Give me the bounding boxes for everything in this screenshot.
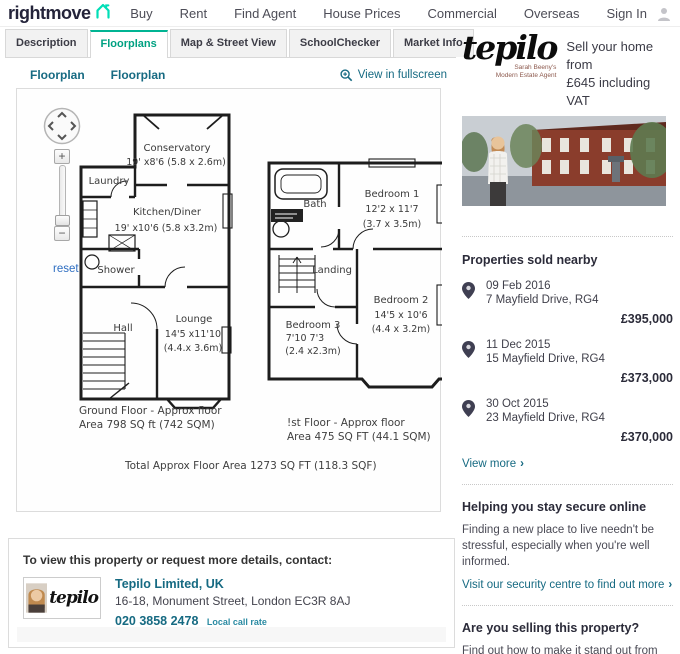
phone-rate-note: Local call rate <box>207 617 267 627</box>
room-label-hall: Hall <box>113 323 132 334</box>
contact-card-footer <box>17 627 446 642</box>
sold-address: 15 Mayfield Drive, RG4 <box>486 353 605 365</box>
chevron-right-icon: › <box>520 458 524 470</box>
floorplan-viewer[interactable]: Conservatory 19' x8'6 (5.8 x 2.6m) Laund… <box>16 88 441 512</box>
sold-address: 7 Mayfield Drive, RG4 <box>486 294 598 306</box>
sold-item[interactable]: 09 Feb 2016 7 Mayfield Drive, RG4 <box>462 280 673 306</box>
contact-card: To view this property or request more de… <box>8 538 455 648</box>
ground-caption-2: Area 798 SQ ft (742 SQM) <box>79 419 215 431</box>
agent-address: 16-18, Monument Street, London EC3R 8AJ <box>115 594 350 608</box>
separator <box>462 605 673 606</box>
tepilo-logo-block: tepilo Sarah Beeny's Modern Estate Agent <box>462 33 556 110</box>
room-label-bath: Bath <box>303 199 326 210</box>
person-icon[interactable] <box>656 6 672 22</box>
room-dims-bedroom2-1: 14'5 x 10'6 <box>374 310 427 321</box>
floorplan-tab-2[interactable]: Floorplan <box>111 68 166 82</box>
secure-body: Finding a new place to live needn't be s… <box>462 522 673 570</box>
agent-photo <box>26 580 47 616</box>
contact-heading: To view this property or request more de… <box>23 553 440 567</box>
nav-house-prices[interactable]: House Prices <box>323 6 400 21</box>
room-dims-bedroom1-2: (3.7 x 3.5m) <box>363 219 422 230</box>
sold-price: £395,000 <box>462 312 673 326</box>
zoom-out-button[interactable]: − <box>54 226 70 241</box>
nav-sign-in[interactable]: Sign In <box>607 6 647 21</box>
selling-heading: Are you selling this property? <box>462 621 673 635</box>
tab-description[interactable]: Description <box>5 29 88 57</box>
tab-floorplans[interactable]: Floorplans <box>90 30 168 58</box>
rightmove-logo-text: rightmove <box>8 3 91 24</box>
room-dims-bedroom3-1: 7'10 7'3 <box>286 333 324 344</box>
zoom-track[interactable] <box>59 165 66 225</box>
total-area-caption: Total Approx Floor Area 1273 SQ FT (118.… <box>124 460 377 472</box>
tepilo-offer: Sell your home from £645 including VAT <box>566 38 673 110</box>
room-dims-bedroom2-2: (4.4 x 3.2m) <box>372 324 431 335</box>
room-dims-lounge-1: 14'5 x11'10 <box>165 329 221 340</box>
airing-cupboard-label <box>271 209 303 222</box>
house-icon <box>93 1 113 21</box>
tab-schoolchecker[interactable]: SchoolChecker <box>289 29 391 57</box>
rightmove-floorplans-page: rightmove Buy Rent Find Agent House Pric… <box>0 0 680 654</box>
ground-caption-1: Ground Floor - Approx floor <box>79 405 222 417</box>
sold-date: 30 Oct 2015 <box>486 398 605 410</box>
selling-body: Find out how to make it stand out from t… <box>462 643 673 654</box>
sold-price: £370,000 <box>462 430 673 444</box>
tab-map-street-view[interactable]: Map & Street View <box>170 29 287 57</box>
zoom-handle[interactable] <box>55 215 70 226</box>
reset-link[interactable]: reset <box>53 263 71 275</box>
floorplan-image: Conservatory 19' x8'6 (5.8 x 2.6m) Laund… <box>17 89 442 509</box>
tepilo-logo-text: tepilo <box>462 33 556 63</box>
zoom-in-button[interactable]: + <box>54 149 70 164</box>
room-label-conservatory: Conservatory <box>143 143 210 154</box>
chevron-right-icon: › <box>668 579 672 591</box>
room-label-landing: Landing <box>312 265 352 276</box>
top-header: rightmove Buy Rent Find Agent House Pric… <box>0 0 680 27</box>
sold-address: 23 Mayfield Drive, RG4 <box>486 412 605 424</box>
view-more-link[interactable]: View more› <box>462 458 673 470</box>
nav-overseas[interactable]: Overseas <box>524 6 580 21</box>
room-label-bedroom3: Bedroom 3 <box>286 320 341 331</box>
separator <box>462 484 673 485</box>
first-caption-2: Area 475 SQ FT (44.1 SQM) <box>287 431 431 443</box>
tepilo-ad-photo[interactable] <box>462 116 666 206</box>
map-pin-icon <box>462 280 486 306</box>
view-fullscreen-label: View in fullscreen <box>358 69 447 81</box>
room-label-bedroom2: Bedroom 2 <box>374 295 429 306</box>
room-label-shower: Shower <box>97 265 135 276</box>
floorplan-section: Floorplan Floorplan View in fullscreen <box>8 62 455 648</box>
agent-name-link[interactable]: Tepilo Limited, UK <box>115 577 350 591</box>
top-nav: Buy Rent Find Agent House Prices Commerc… <box>130 4 672 22</box>
rightmove-logo[interactable]: rightmove <box>8 3 113 24</box>
map-pin-icon <box>462 339 486 365</box>
room-label-lounge: Lounge <box>176 314 213 325</box>
room-label-kitchen: Kitchen/Diner <box>133 207 202 218</box>
room-dims-conservatory: 19' x8'6 (5.8 x 2.6m) <box>126 157 226 168</box>
right-sidebar: tepilo Sarah Beeny's Modern Estate Agent… <box>462 33 673 654</box>
floorplan-toolbar: Floorplan Floorplan View in fullscreen <box>8 62 455 88</box>
agent-phone[interactable]: 020 3858 2478 <box>115 614 198 628</box>
separator <box>462 236 673 237</box>
nav-buy[interactable]: Buy <box>130 6 152 21</box>
sold-item[interactable]: 30 Oct 2015 23 Mayfield Drive, RG4 <box>462 398 673 424</box>
security-centre-link[interactable]: Visit our security centre to find out mo… <box>462 579 673 591</box>
sold-date: 09 Feb 2016 <box>486 280 598 292</box>
room-dims-bedroom1-1: 12'2 x 11'7 <box>365 204 418 215</box>
street-scene-image <box>462 116 666 206</box>
view-fullscreen-link[interactable]: View in fullscreen <box>340 69 447 82</box>
agent-logo[interactable]: tepilo <box>23 577 101 619</box>
secure-heading: Helping you stay secure online <box>462 500 673 514</box>
first-caption-1: !st Floor - Approx floor <box>287 417 405 429</box>
zoom-slider: + − reset <box>53 149 71 275</box>
sold-price: £373,000 <box>462 371 673 385</box>
nav-rent[interactable]: Rent <box>180 6 207 21</box>
room-dims-kitchen: 19' x10'6 (5.8 x3.2m) <box>115 223 218 234</box>
agent-logo-text: tepilo <box>49 588 98 608</box>
sold-item[interactable]: 11 Dec 2015 15 Mayfield Drive, RG4 <box>462 339 673 365</box>
agent-details: Tepilo Limited, UK 16-18, Monument Stree… <box>115 577 350 630</box>
sold-nearby-heading: Properties sold nearby <box>462 253 673 267</box>
room-label-laundry: Laundry <box>89 176 130 187</box>
map-pin-icon <box>462 398 486 424</box>
tepilo-ad[interactable]: tepilo Sarah Beeny's Modern Estate Agent… <box>462 33 673 110</box>
room-dims-lounge-2: (4.4.x 3.6m) <box>164 343 223 354</box>
property-tabbar: Description Floorplans Map & Street View… <box>5 29 456 58</box>
nav-commercial[interactable]: Commercial <box>428 6 497 21</box>
nav-find-agent[interactable]: Find Agent <box>234 6 296 21</box>
pan-control[interactable] <box>43 107 81 145</box>
plan-captions: Ground Floor - Approx floor Area 798 SQ … <box>79 405 431 472</box>
sold-date: 11 Dec 2015 <box>486 339 605 351</box>
floorplan-tab-1[interactable]: Floorplan <box>30 68 85 82</box>
room-label-bedroom1: Bedroom 1 <box>365 189 420 200</box>
room-dims-bedroom3-2: (2.4 x2.3m) <box>285 346 341 357</box>
magnifier-icon <box>340 69 353 82</box>
